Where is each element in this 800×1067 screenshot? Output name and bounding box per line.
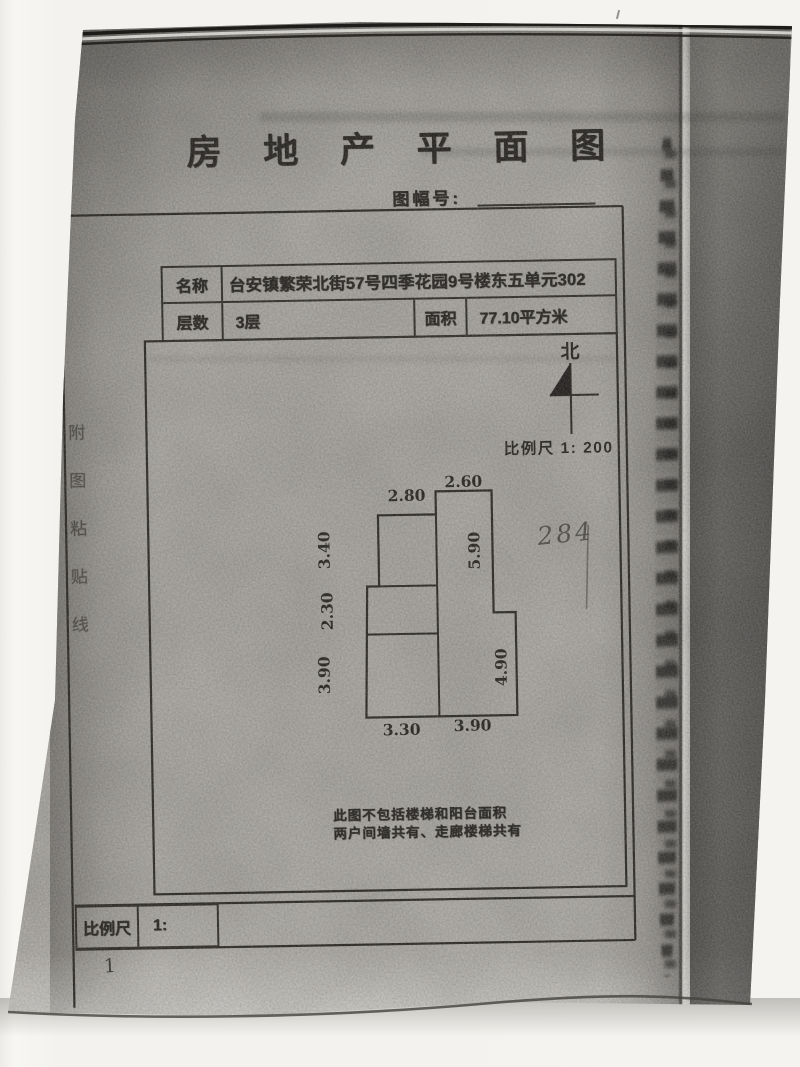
dim-left-3: 3.90: [314, 656, 334, 694]
dim-top-left: 2.80: [388, 486, 426, 506]
fold-dark-band-shading: [690, 0, 790, 1067]
dim-top-right: 2.60: [444, 472, 482, 492]
handwritten-note: 284: [536, 516, 595, 551]
fold-dark-line: [679, 0, 682, 1067]
dim-bottom-right: 3.90: [454, 715, 492, 735]
info-table-row-floors-area: 层数 3层 面积 77.10平方米: [163, 296, 616, 340]
name-value-cell: 台安镇繁荣北街57号四季花园9号楼东五单元302: [223, 260, 616, 301]
scale-note-text: 比例尺 1: 200: [504, 437, 614, 458]
footer-scale-label: 比例尺: [77, 907, 140, 948]
plan-note-line-2: 两户间墙共有、走廊楼梯共有: [333, 822, 522, 843]
page-number: 1: [103, 955, 116, 978]
sheet-number-blank-line: [478, 203, 596, 207]
paste-line-vertical-text: 附图粘贴线: [62, 423, 92, 703]
info-table: 名称 台安镇繁荣北街57号四季花园9号楼东五单元302 层数 3层 面积 77.…: [161, 258, 618, 342]
floors-label-cell: 层数: [163, 303, 224, 340]
area-label-cell: 面积: [415, 299, 468, 336]
north-label: 北: [560, 341, 579, 363]
north-arrow-head: [549, 363, 571, 395]
sheet-number-label: 图幅号:: [392, 184, 461, 210]
floorplan-outline: [363, 490, 518, 718]
name-label-cell: 名称: [163, 267, 224, 302]
dim-left-2: 2.30: [317, 592, 337, 630]
fold-crease-highlight: [683, 0, 690, 1067]
footer-scale-box: 比例尺 1:: [75, 903, 220, 950]
north-arrow-crossbar: [550, 395, 599, 396]
floors-value-cell: 3层: [223, 300, 416, 339]
scanned-page: 北 比例尺 1: 200 2.80 2.60 3.40 2.30 3.90 5.…: [0, 0, 800, 1067]
area-value-cell: 77.10平方米: [467, 296, 616, 335]
north-arrow-shaft: [570, 363, 571, 434]
page-title: 房 地 产 平 面 图: [186, 117, 621, 176]
dim-inner-2: 4.90: [491, 648, 511, 686]
dim-bottom-left: 3.30: [383, 720, 421, 740]
floorplan-interior-walls: [364, 514, 440, 717]
dim-left-1: 3.40: [314, 531, 334, 569]
margin-tick-mark: [616, 10, 620, 19]
photo-background: 北 比例尺 1: 200 2.80 2.60 3.40 2.30 3.90 5.…: [0, 0, 800, 1067]
footer-scale-value: 1:: [139, 905, 218, 946]
plan-notes: 此图不包括楼梯和阳台面积 两户间墙共有、走廊楼梯共有: [333, 804, 522, 843]
ghost-print-smudges-2: [665, 150, 676, 970]
outer-frame-top-line: [65, 206, 623, 216]
dim-inner-1: 5.90: [464, 531, 484, 569]
